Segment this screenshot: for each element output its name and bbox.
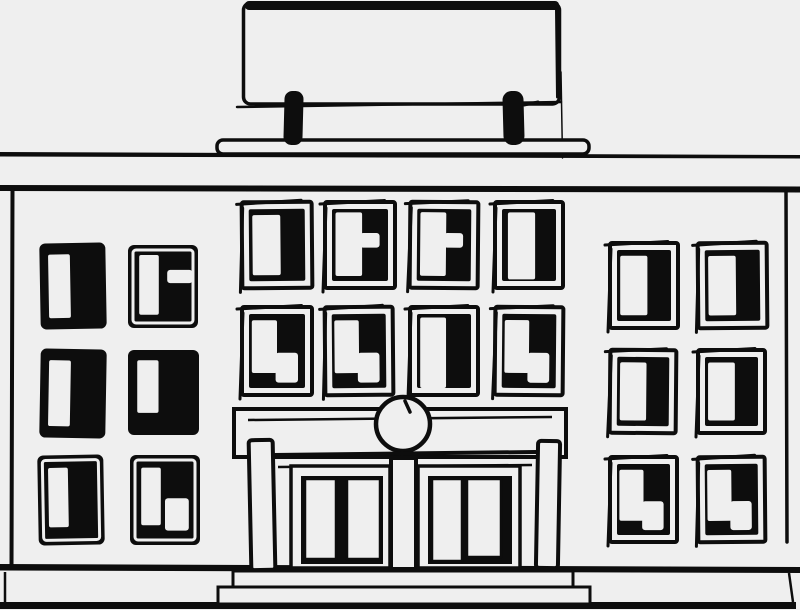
window-pane-highlight: [252, 215, 281, 275]
window-pane-highlight: [508, 212, 535, 279]
window-corner-highlight: [527, 353, 549, 383]
window-corner-highlight: [165, 498, 189, 530]
step-lower: [218, 587, 590, 604]
door-right: [418, 466, 520, 568]
roof-band-bottom-line: [0, 185, 800, 193]
window-center-r2c4: [490, 305, 564, 399]
window-pane-highlight: [48, 254, 71, 318]
window-right-r2c1: [605, 348, 677, 437]
portico-column-left: [249, 440, 276, 570]
window-left-r3c1: [37, 454, 105, 545]
window-pane-highlight: [252, 320, 277, 373]
foundation-right-edge: [789, 573, 793, 602]
window-pane-highlight: [139, 255, 159, 315]
window-left-r1c1: [39, 242, 106, 329]
facade-left-edge: [12, 189, 13, 567]
door-right-panel-a: [432, 479, 462, 561]
window-pane-highlight: [707, 470, 732, 521]
window-pane-highlight: [708, 362, 735, 420]
door-right-panel-b: [467, 479, 501, 557]
building-sketch-canvas: [0, 0, 800, 610]
window-notch-highlight: [444, 233, 463, 248]
window-glass-dark: [130, 455, 200, 545]
window-center-r2c2: [320, 305, 394, 399]
window-center-r1c1: [237, 200, 313, 292]
window-left-r3c2: [130, 455, 200, 545]
sign-post-right: [502, 91, 524, 146]
window-corner-highlight: [730, 501, 752, 530]
window-pane-highlight: [620, 362, 647, 420]
window-pane-highlight: [141, 468, 161, 526]
window-pane-highlight: [336, 212, 363, 276]
window-glass-dark: [128, 245, 198, 328]
window-right-r3c1: [605, 456, 677, 547]
facade-right-edge: [786, 191, 787, 542]
window-notch-highlight: [167, 270, 192, 283]
window-pane-highlight: [420, 212, 446, 276]
window-left-r1c2: [128, 245, 198, 328]
sign-plinth: [217, 140, 589, 154]
window-pane-highlight: [619, 470, 643, 521]
window-pane-highlight: [137, 360, 158, 413]
window-left-r2c2: [128, 350, 199, 435]
window-center-r1c3: [405, 200, 479, 292]
window-center-r2c3: [405, 306, 478, 400]
window-left-r2c1: [39, 348, 107, 438]
entrance-portico: [234, 397, 566, 570]
sign-board: [244, 3, 560, 104]
window-corner-highlight: [276, 353, 298, 383]
window-notch-highlight: [360, 233, 380, 248]
window-corner-highlight: [642, 501, 663, 530]
sign-right-inner-stroke: [557, 9, 558, 97]
door-left-panel-a: [305, 479, 336, 559]
portico-center-pillar: [391, 458, 416, 569]
window-center-r1c4: [490, 201, 563, 293]
window-right-r2c2: [693, 349, 765, 438]
window-glass-dark: [37, 454, 105, 545]
window-corner-highlight: [358, 353, 380, 383]
window-right-r1c1: [605, 242, 678, 333]
window-pane-highlight: [708, 256, 736, 316]
window-pane-highlight: [48, 468, 69, 528]
sign-top-edge: [245, 1, 559, 10]
building-illustration: [0, 0, 800, 610]
door-left-panel-b: [347, 479, 380, 559]
window-right-r1c2: [693, 241, 768, 332]
window-pane-highlight: [48, 360, 71, 426]
entrance-steps: [218, 571, 590, 604]
window-center-r2c1: [237, 306, 312, 400]
window-right-r3c2: [693, 455, 766, 546]
portico-column-right: [536, 441, 560, 568]
door-left: [291, 466, 390, 568]
window-pane-highlight: [334, 320, 359, 373]
sign-post-left: [283, 91, 303, 145]
step-upper: [233, 571, 573, 588]
window-pane-highlight: [504, 320, 529, 373]
window-center-r1c2: [320, 201, 395, 293]
clock-medallion: [376, 397, 430, 451]
roof-band: [0, 152, 800, 193]
window-pane-highlight: [620, 256, 647, 316]
window-pane-highlight: [420, 318, 446, 388]
